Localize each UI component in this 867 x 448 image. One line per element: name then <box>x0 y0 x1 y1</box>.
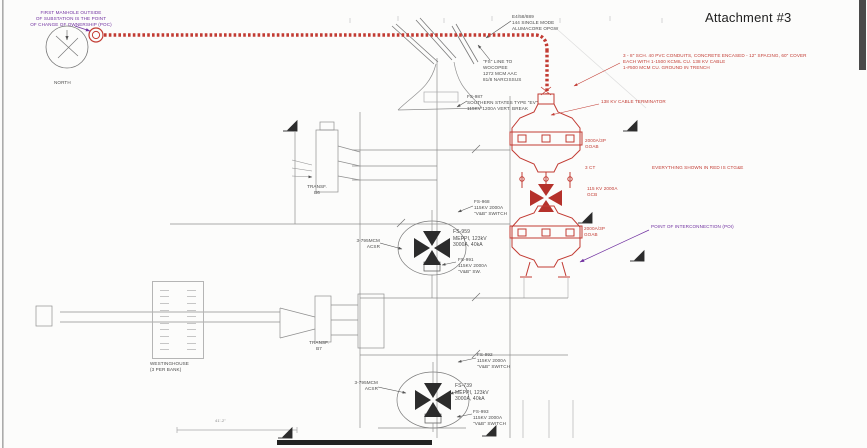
poi-note: POINT OF INTERCONNECTION (POI) <box>651 224 734 230</box>
manhole-symbol <box>89 28 103 42</box>
red-switchgear <box>510 94 582 277</box>
cable-terminator-symbol <box>538 94 554 104</box>
red-conduit-run <box>89 28 620 115</box>
everything-red-note: EVERYTHING SHOWN IN RED IS CTG&E <box>652 165 743 171</box>
gcb-symbol <box>530 184 562 212</box>
device-label-fs987: FS-987 SOUTHERN STATES TYPE "EV" 115KV 1… <box>467 94 538 112</box>
ct-label: 3 CT <box>585 165 595 171</box>
conduit-note: 3 - 8" SCH. 40 PVC CONDUITS, CONCRETE EN… <box>623 53 823 71</box>
transformer-b6-label: TRANSF. B6 <box>300 184 334 196</box>
device-label-fs968: FS-968 115KV 2000A "V&B" SWITCH <box>474 199 507 217</box>
goab-upper-label: 2000A/3P GOAB <box>585 138 606 150</box>
transformer-b7-label: TRANSF. B7 <box>302 340 336 352</box>
fs-line-label: "FS" LINE TO WOCOPEE 1272 MCM AAC 81/8 N… <box>483 59 521 83</box>
acsr-lower-label: 3-795MCM ACSR <box>348 380 378 392</box>
equipment-schedule-table <box>152 281 204 359</box>
dimension-label: 41'-2" <box>215 418 226 423</box>
device-label-fs991: FS-991 115KV 2000A "V&B" SW. <box>458 257 487 275</box>
device-label-fs959: FS-959 MEPPI, 123kV 3000A, 40kA <box>453 229 487 249</box>
drawing-sheet: Attachment #3 FIRST MANHOLE OUTSIDE OF S… <box>0 0 867 448</box>
device-label-fs739: FS-739 MEPPI, 123kV 3000A, 40kA <box>455 383 489 403</box>
purple-leaders <box>75 26 649 262</box>
acsr-upper-label: 3-795MCM ACSR <box>350 238 380 250</box>
westinghouse-label: WESTINGHOUSE (3 PER BANK) <box>150 361 189 373</box>
device-label-fs992: FS-992 115KV 2000A "V&B" SWITCH <box>477 352 510 370</box>
poc-note: FIRST MANHOLE OUTSIDE OF SUBSTATION IS T… <box>12 10 130 28</box>
circuit-breaker-symbols <box>414 231 451 417</box>
gcb-label: 115 KV 2000A GCB <box>587 186 618 198</box>
north-label: NORTH <box>54 80 71 86</box>
device-label-fs993: FS-993 115KV 2000A "V&B" SWITCH <box>473 409 506 427</box>
north-arrow <box>46 26 88 68</box>
goab-lower-label: 2000A/3P GOAB <box>584 226 605 238</box>
attachment-title: Attachment #3 <box>705 10 791 27</box>
cable-terminator-note: 138 KV CABLE TERMINATOR <box>601 99 666 105</box>
opgw-label: E4/58/889 144 SINGLE MODE ALUMACORE OPGW <box>512 14 558 32</box>
upper-goab-tank <box>512 104 580 172</box>
